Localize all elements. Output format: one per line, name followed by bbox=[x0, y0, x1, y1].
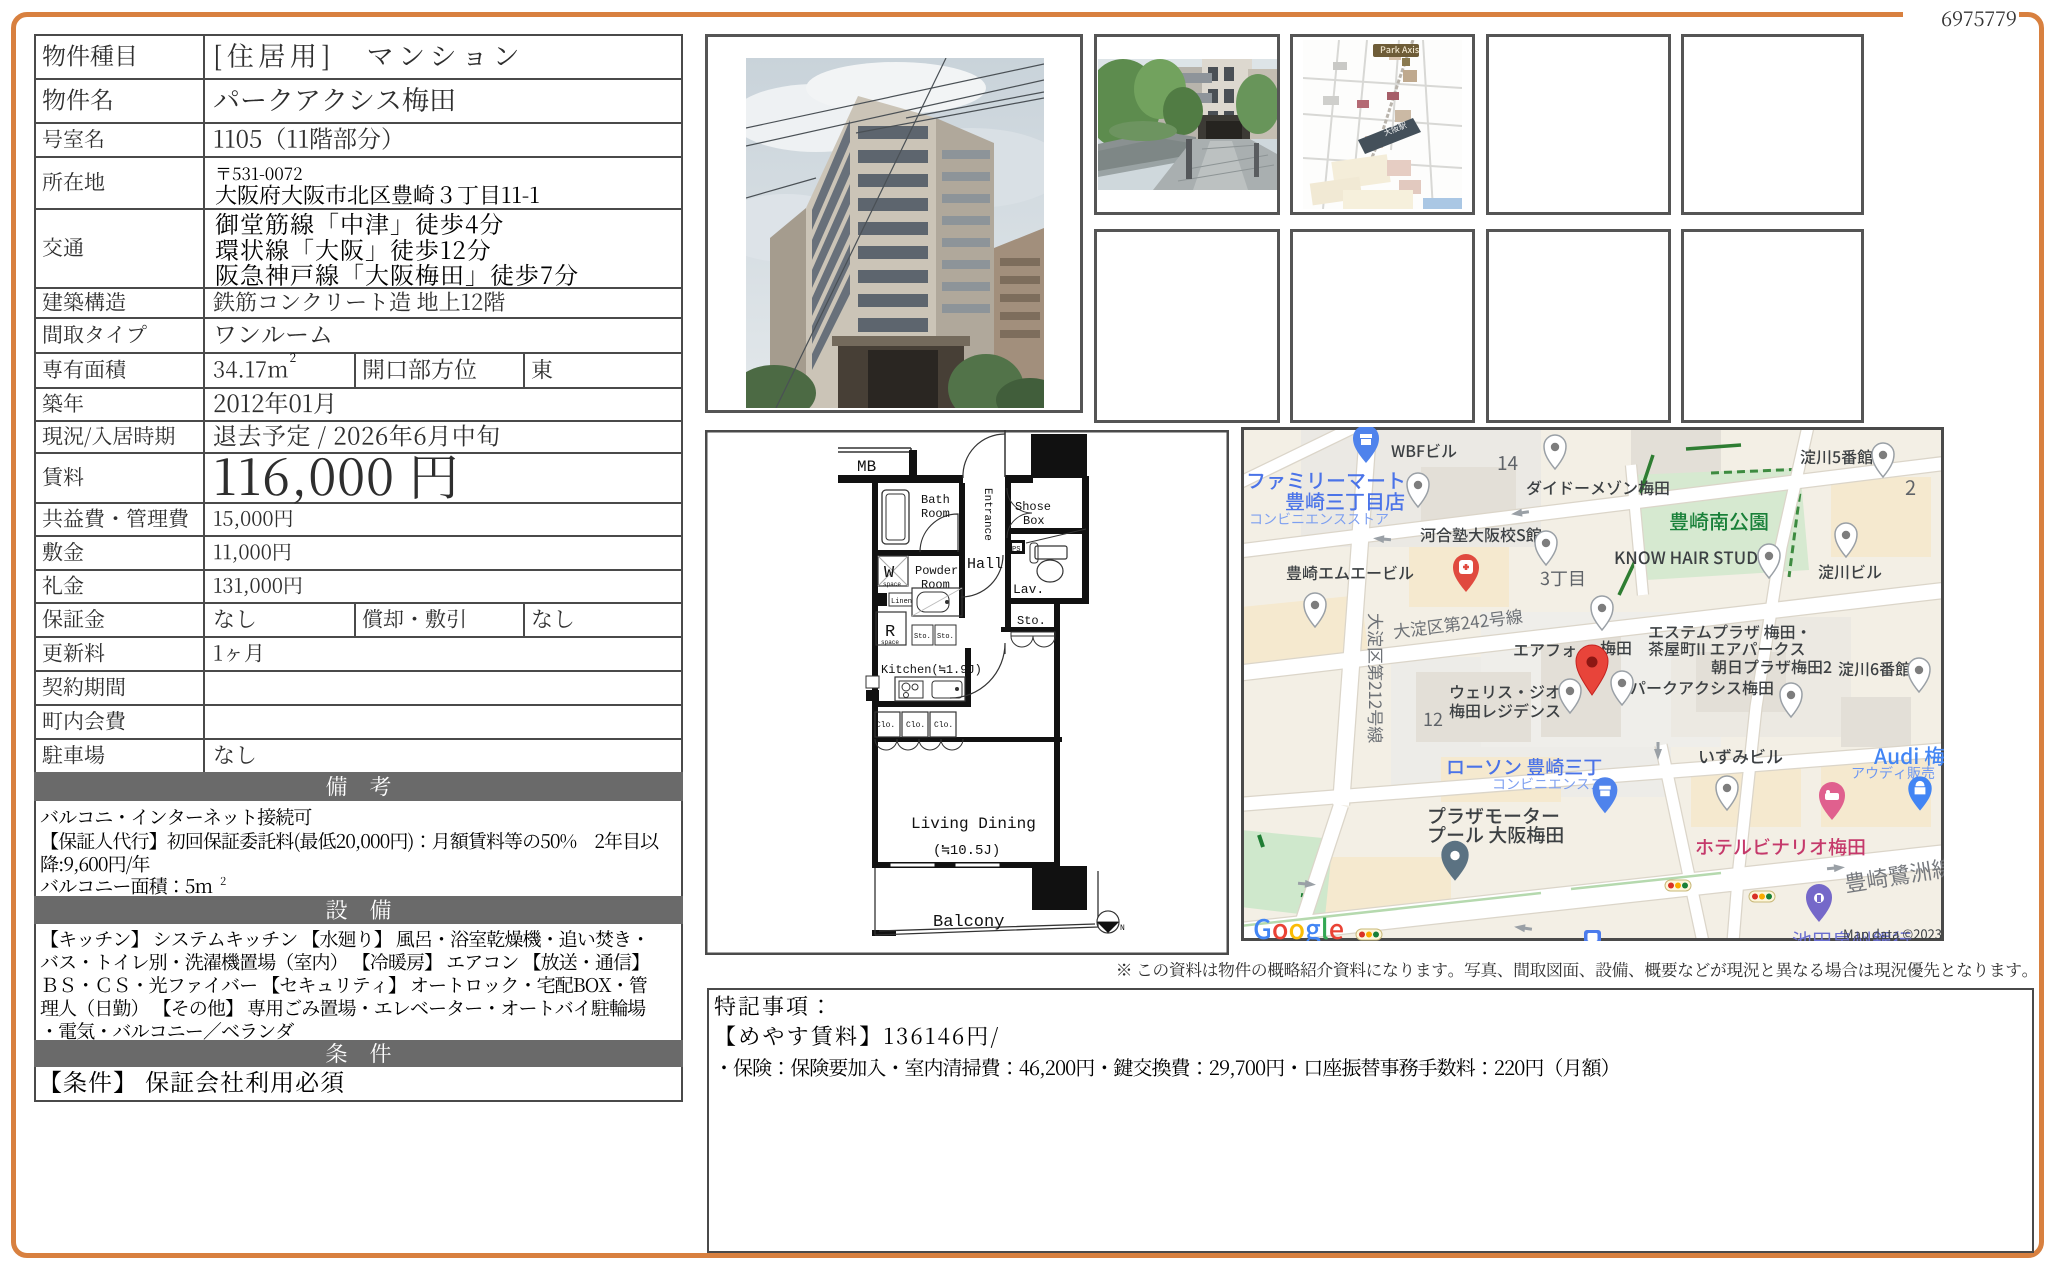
svg-text:Sto.: Sto. bbox=[1017, 614, 1046, 628]
svg-text:Linen: Linen bbox=[891, 598, 912, 606]
svg-text:PS: PS bbox=[1012, 546, 1020, 554]
svg-text:Sto.: Sto. bbox=[937, 633, 954, 641]
svg-text:Room: Room bbox=[921, 507, 950, 521]
svg-text:(≒10.5J): (≒10.5J) bbox=[933, 843, 1000, 859]
svg-text:Room: Room bbox=[921, 578, 950, 592]
svg-text:Bath: Bath bbox=[921, 493, 950, 507]
svg-text:Powder: Powder bbox=[915, 564, 958, 578]
svg-text:Hall: Hall bbox=[967, 556, 1003, 573]
svg-text:Sto.: Sto. bbox=[914, 633, 931, 641]
svg-text:space: space bbox=[883, 581, 901, 588]
svg-text:Clo.: Clo. bbox=[934, 721, 953, 730]
svg-text:N: N bbox=[1120, 924, 1125, 933]
svg-text:Shose: Shose bbox=[1015, 500, 1051, 514]
svg-text:Lav.: Lav. bbox=[1013, 582, 1044, 597]
svg-text:Clo.: Clo. bbox=[876, 721, 895, 730]
svg-text:MB: MB bbox=[857, 458, 876, 476]
svg-text:Living Dining: Living Dining bbox=[911, 815, 1036, 833]
svg-text:space: space bbox=[881, 639, 899, 646]
svg-text:Clo.: Clo. bbox=[906, 721, 925, 730]
svg-text:Balcony: Balcony bbox=[933, 913, 1004, 932]
svg-text:Entrance: Entrance bbox=[981, 488, 993, 541]
svg-text:Kitchen(≒1.9J): Kitchen(≒1.9J) bbox=[881, 663, 982, 677]
svg-text:Box: Box bbox=[1023, 514, 1045, 528]
